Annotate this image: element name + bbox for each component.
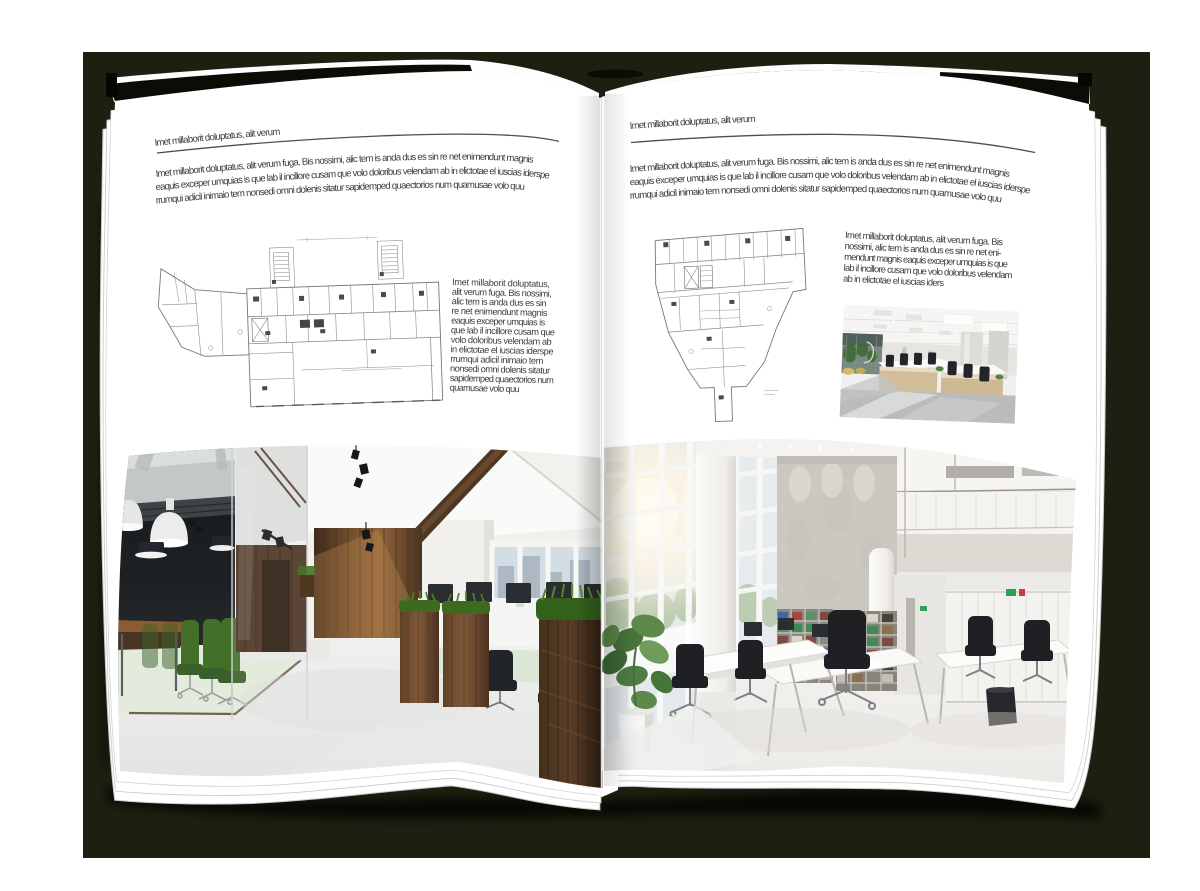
- svg-text:quamusae volo quu: quamusae volo quu: [450, 383, 520, 395]
